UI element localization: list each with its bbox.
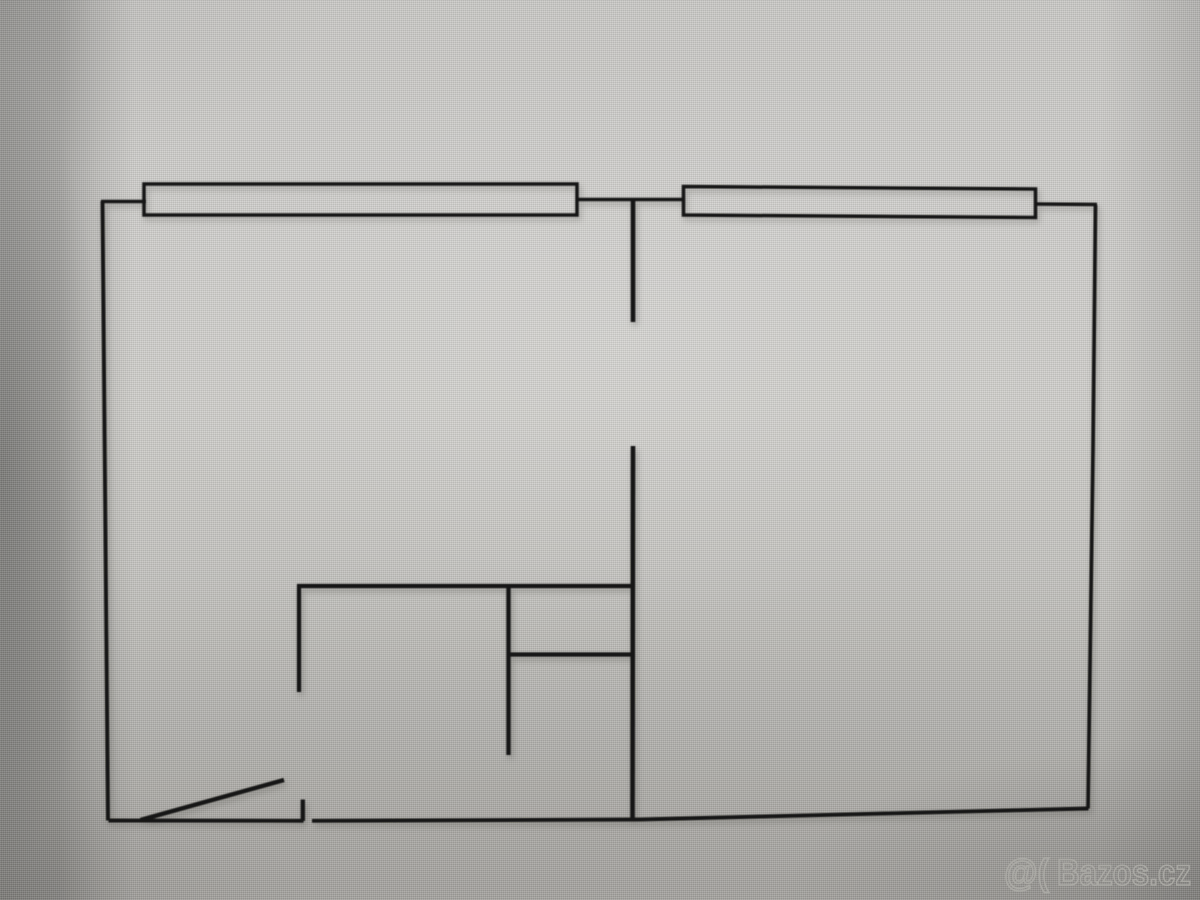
svg-text:Bazos.cz: Bazos.cz xyxy=(1057,852,1191,893)
svg-text:@(: @( xyxy=(1004,852,1050,893)
